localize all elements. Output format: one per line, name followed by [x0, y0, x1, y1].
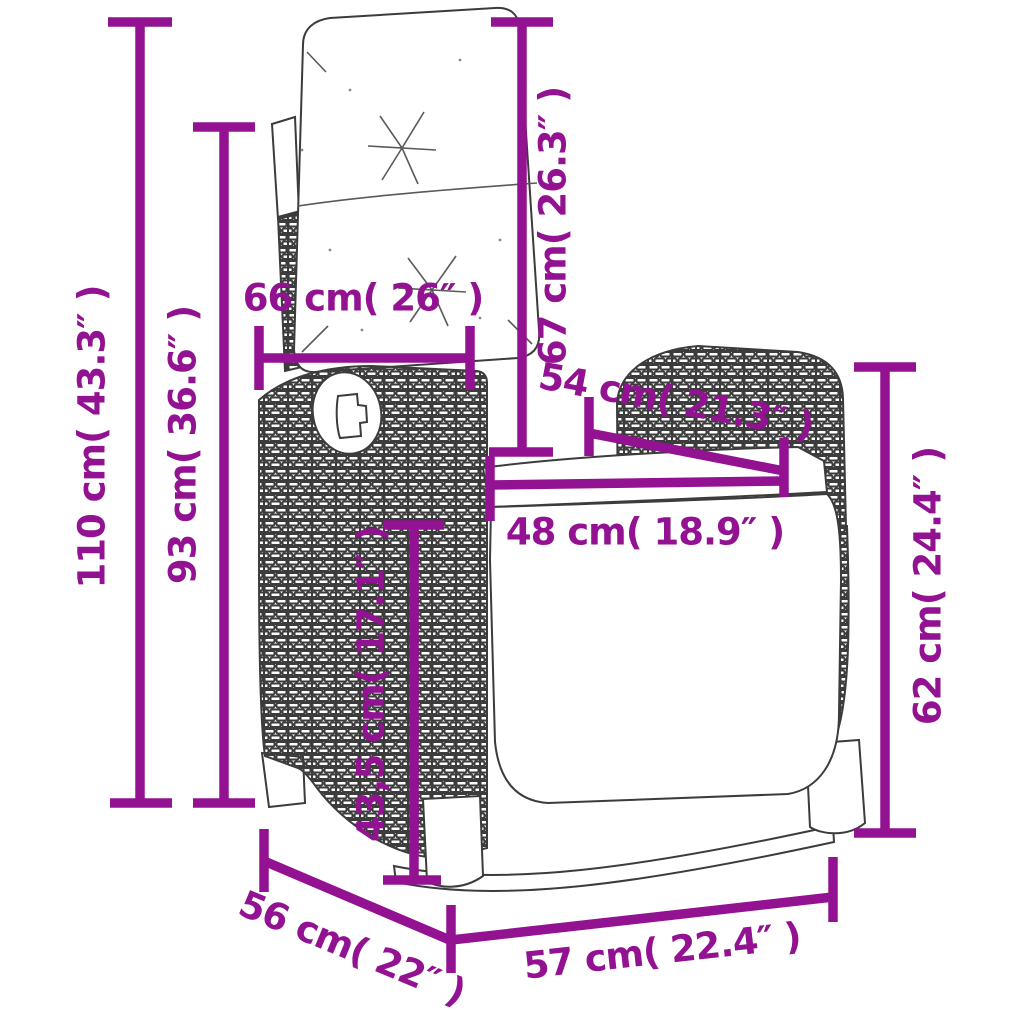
product-dimension-diagram: 110 cm( 43.3″ ) 93 cm( 36.6″ ) 66 cm( 26… [0, 0, 1024, 1024]
dim-label-backrest-cushion-height: 67 cm( 26.3″ ) [535, 87, 572, 365]
dim-label-backrest-cushion-width: 66 cm( 26″ ) [243, 280, 483, 317]
dim-label-overall-height: 110 cm( 43.3″ ) [74, 285, 111, 588]
dim-label-backrest-top-height: 93 cm( 36.6″ ) [165, 306, 202, 584]
dim-label-armrest-height: 62 cm( 24.4″ ) [910, 447, 947, 725]
dim-label-seat-height: 43,5 cm( 17.1″ ) [353, 526, 390, 842]
dim-label-seat-front-width: 48 cm( 18.9″ ) [506, 514, 784, 551]
dim-backrest-cushion-width-line [259, 326, 470, 390]
